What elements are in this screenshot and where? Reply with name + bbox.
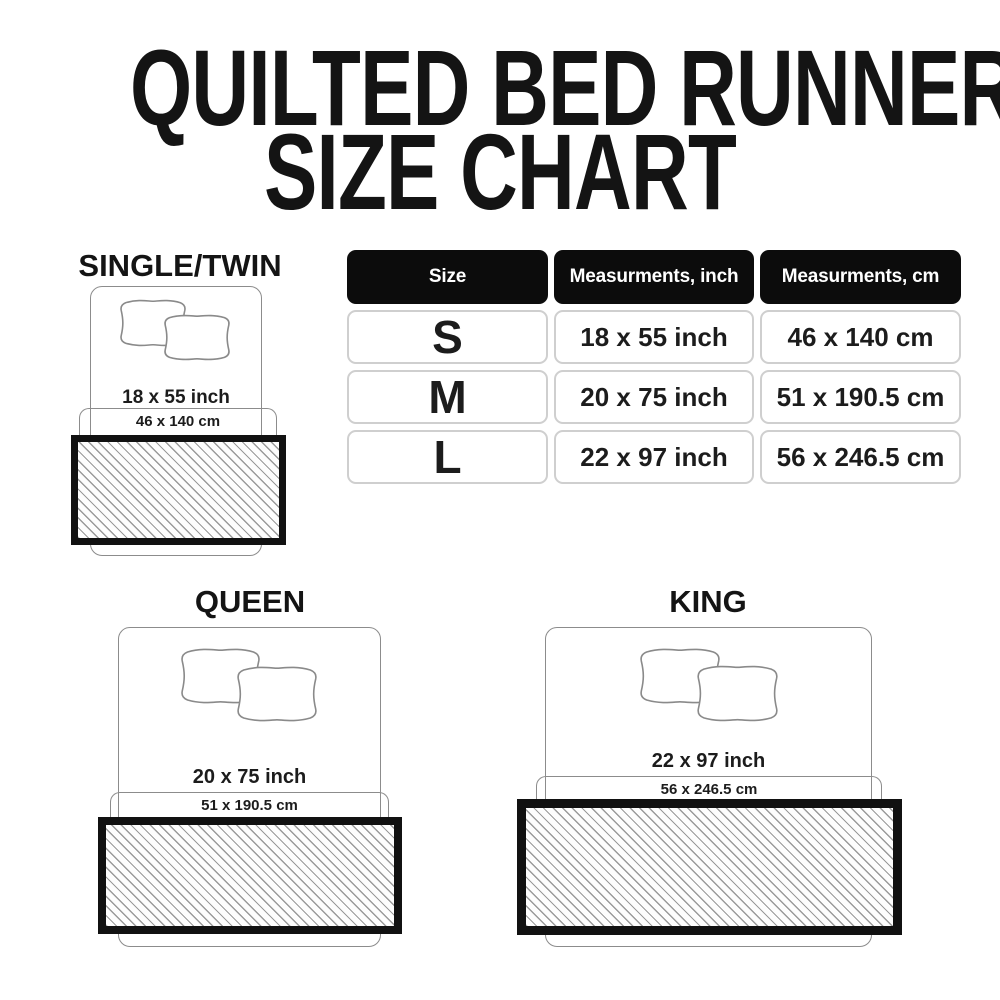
inch-measurement-label: 22 x 97 inch <box>545 750 872 773</box>
column-header-cm: Measurments, cm <box>760 250 961 304</box>
pillow-icon <box>232 662 322 726</box>
title-line-2: SIZE CHART <box>130 130 870 214</box>
cm-measurement-label: 46 x 140 cm <box>80 413 276 430</box>
cm-measurement-label: 56 x 246.5 cm <box>537 781 881 798</box>
inch-cell-m: 20 x 75 inch <box>554 370 754 424</box>
hatched-runner-swatch <box>517 799 902 935</box>
hatched-runner-swatch <box>98 817 402 934</box>
pillow-icon <box>160 311 234 364</box>
cm-cell-m: 51 x 190.5 cm <box>760 370 961 424</box>
bed-outline <box>90 286 262 556</box>
size-chart-infographic: QUILTED BED RUNNER SIZE CHART Size Measu… <box>0 0 1000 1000</box>
cm-measurement-bracket: 56 x 246.5 cm <box>536 776 882 818</box>
diagram-label: SINGLE/TWIN <box>40 248 320 284</box>
inch-cell-s: 18 x 55 inch <box>554 310 754 364</box>
size-cell-s: S <box>347 310 548 364</box>
bed-outline <box>545 627 872 947</box>
cm-cell-s: 46 x 140 cm <box>760 310 961 364</box>
inch-cell-l: 22 x 97 inch <box>554 430 754 484</box>
cm-measurement-label: 51 x 190.5 cm <box>111 797 388 814</box>
inch-measurement-label: 18 x 55 inch <box>90 387 262 409</box>
diagram-label: KING <box>568 584 848 620</box>
inch-measurement-label: 20 x 75 inch <box>118 766 381 789</box>
bed-outline <box>118 627 381 947</box>
pillow-icon <box>692 661 783 726</box>
diagram-label: QUEEN <box>110 584 390 620</box>
hatched-runner-swatch <box>71 435 286 545</box>
size-table: Size Measurments, inch Measurments, cm S… <box>347 250 961 484</box>
cm-measurement-bracket: 51 x 190.5 cm <box>110 792 389 837</box>
pillow-icon <box>635 644 725 708</box>
size-cell-m: M <box>347 370 548 424</box>
pillow-icon <box>176 644 265 708</box>
page-title: QUILTED BED RUNNER SIZE CHART <box>0 46 1000 214</box>
cm-cell-l: 56 x 246.5 cm <box>760 430 961 484</box>
cm-measurement-bracket: 46 x 140 cm <box>79 408 277 453</box>
column-header-inch: Measurments, inch <box>554 250 754 304</box>
pillow-icon <box>116 296 190 350</box>
column-header-size: Size <box>347 250 548 304</box>
size-cell-l: L <box>347 430 548 484</box>
